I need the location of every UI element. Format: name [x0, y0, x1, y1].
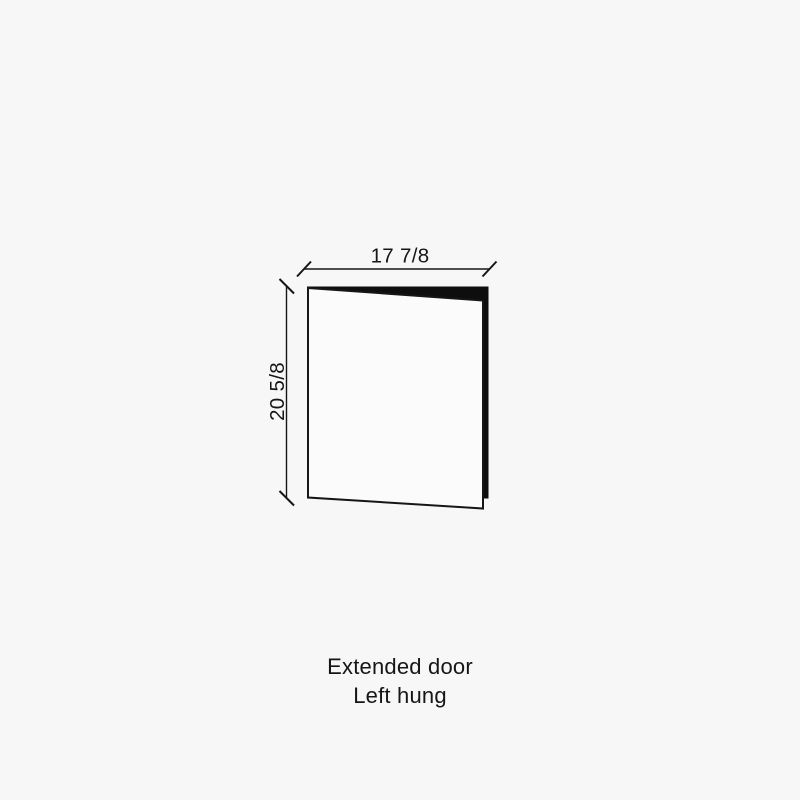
caption-line-1: Extended door	[0, 652, 800, 681]
door-diagram-page: 17 7/8 20 5/8 Extended door Left hung	[0, 0, 800, 800]
width-dimension-label: 17 7/8	[371, 245, 430, 268]
caption-line-2: Left hung	[0, 681, 800, 710]
door-front-panel	[308, 288, 483, 509]
caption: Extended door Left hung	[0, 652, 800, 710]
height-dimension-label: 20 5/8	[266, 362, 289, 421]
